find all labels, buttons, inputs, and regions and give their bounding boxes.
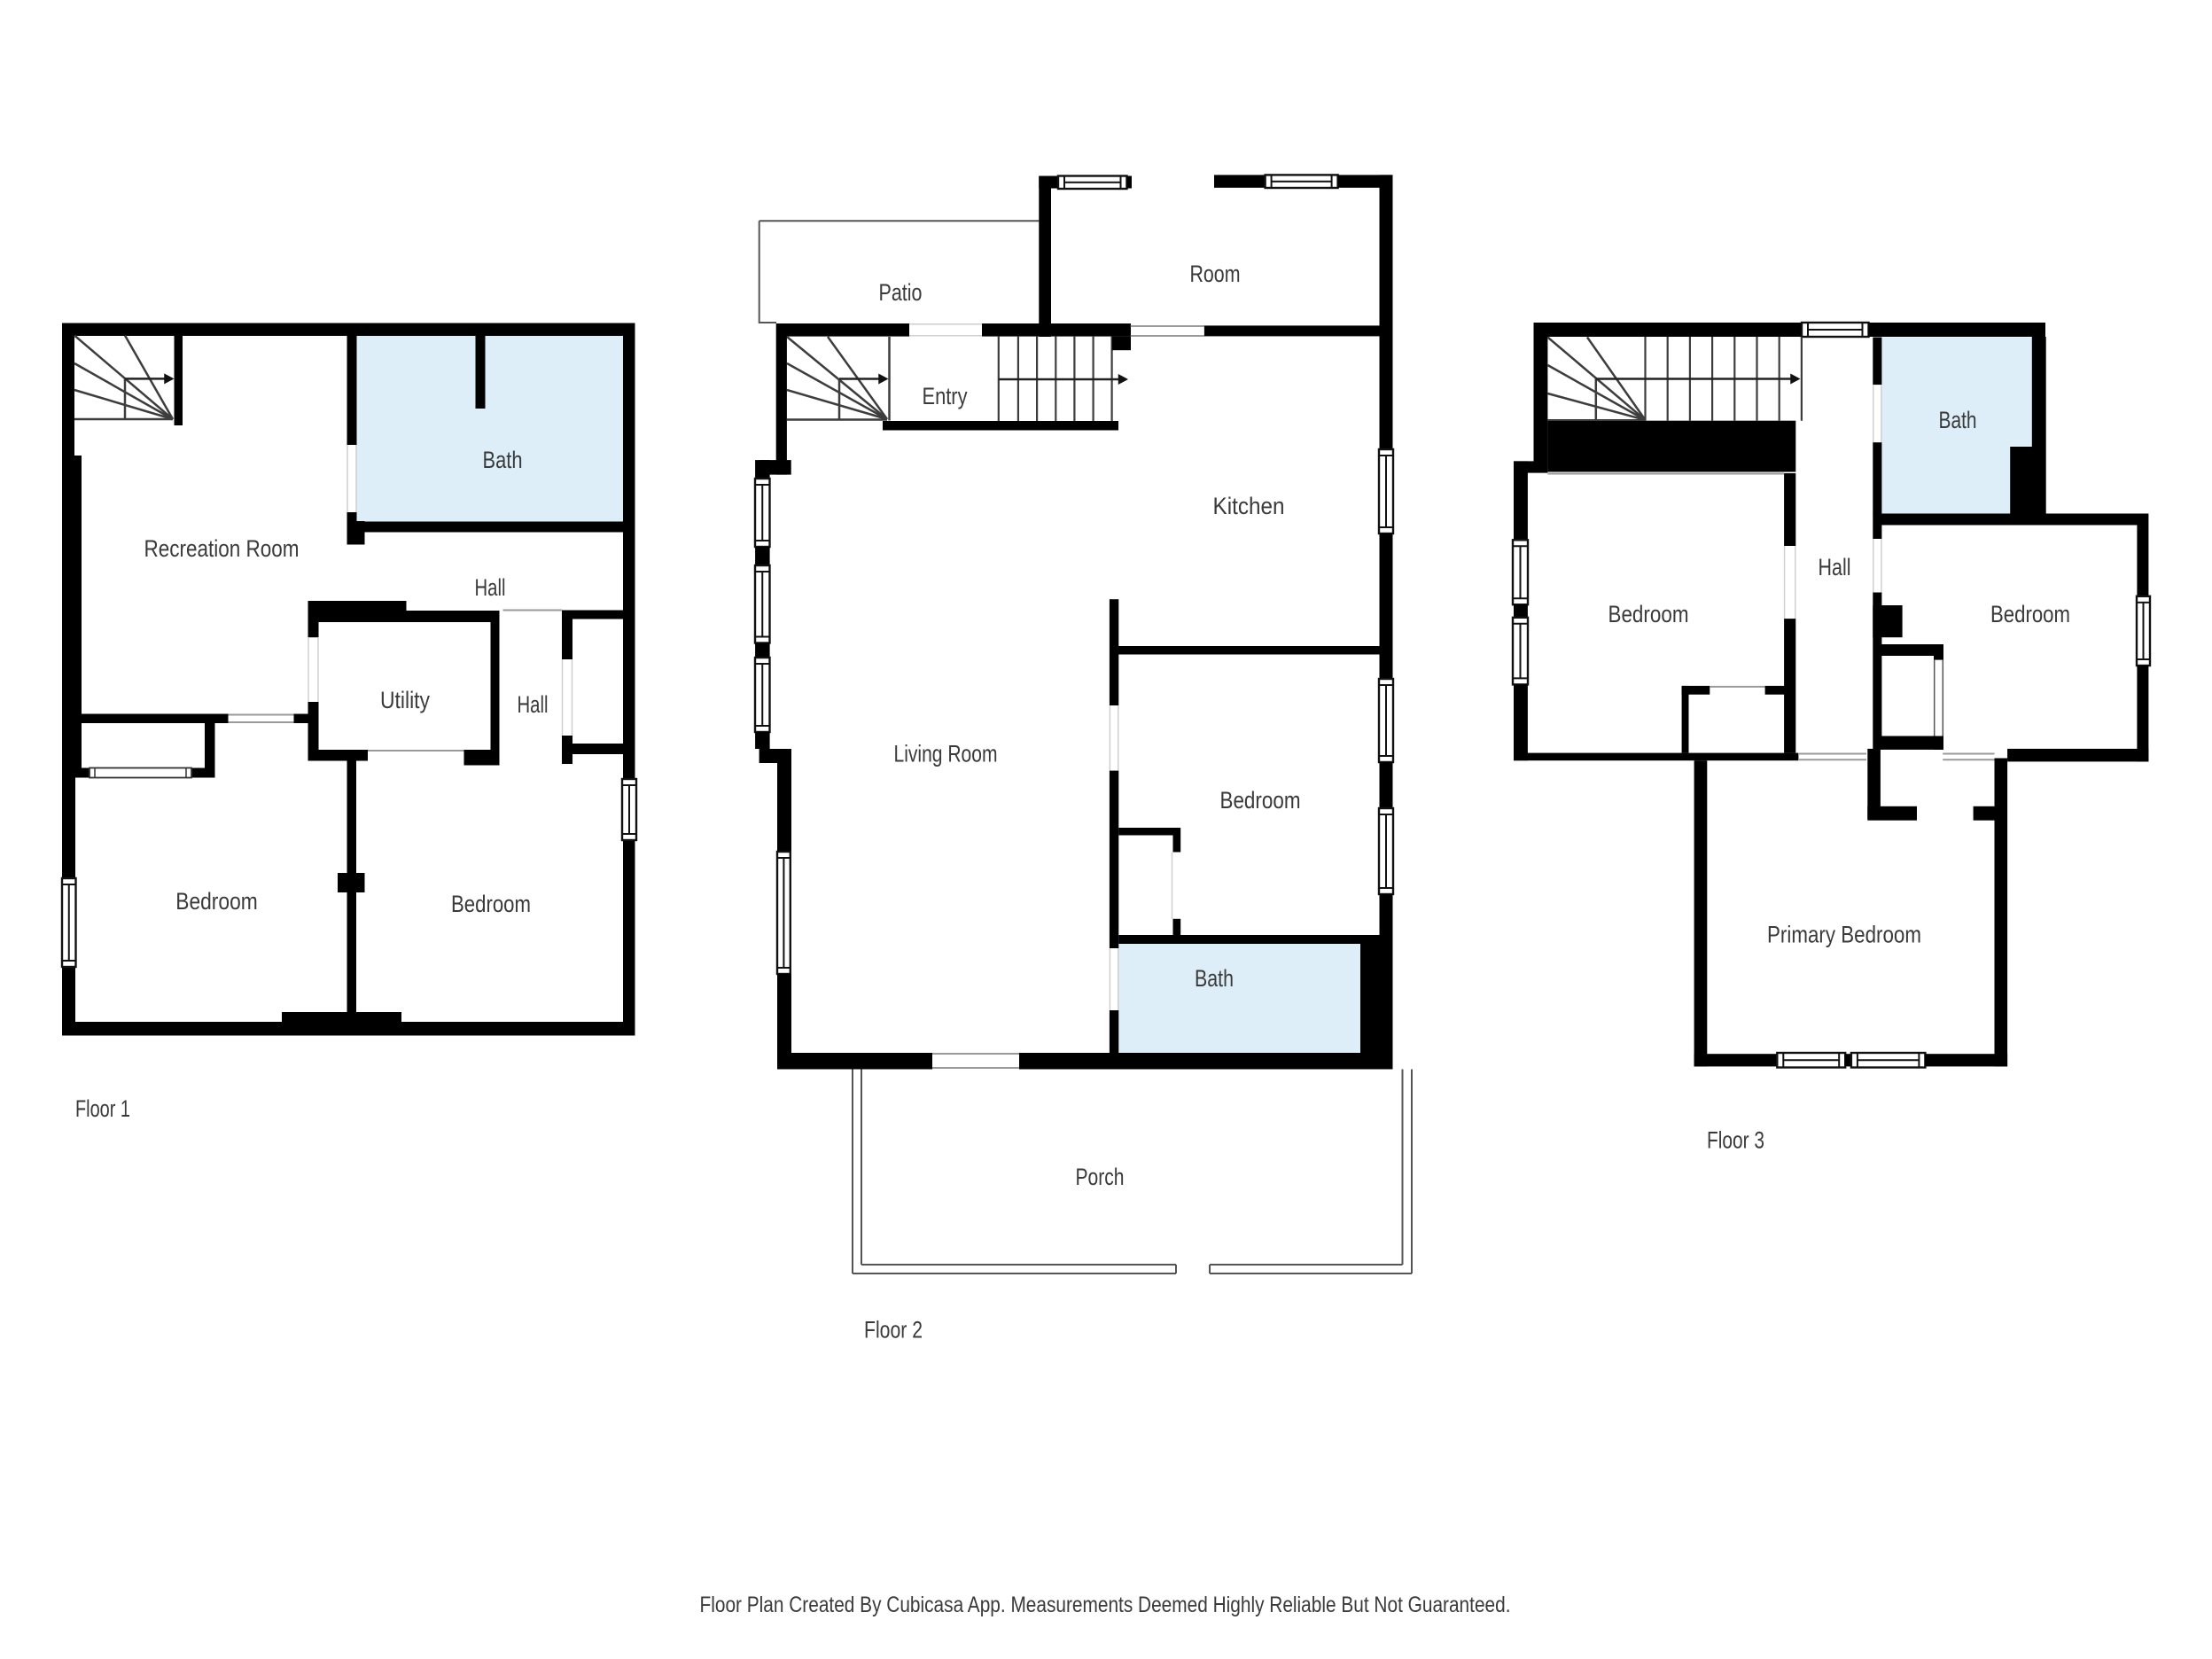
svg-text:Hall: Hall	[475, 574, 506, 601]
svg-text:Utility: Utility	[380, 687, 430, 713]
svg-text:Entry: Entry	[923, 383, 968, 409]
svg-text:Floor 1: Floor 1	[75, 1095, 130, 1122]
svg-text:Room: Room	[1190, 261, 1241, 287]
svg-text:Bath: Bath	[483, 447, 523, 473]
svg-text:Bedroom: Bedroom	[1220, 787, 1301, 814]
svg-text:Primary Bedroom: Primary Bedroom	[1767, 922, 1921, 948]
svg-text:Bedroom: Bedroom	[1608, 601, 1689, 627]
svg-text:Porch: Porch	[1076, 1164, 1125, 1190]
svg-text:Recreation Room: Recreation Room	[144, 535, 300, 562]
svg-text:Floor Plan Created By Cubicasa: Floor Plan Created By Cubicasa App. Meas…	[700, 1593, 1511, 1617]
svg-text:Hall: Hall	[1819, 554, 1851, 580]
svg-text:Patio: Patio	[879, 279, 923, 306]
svg-text:Kitchen: Kitchen	[1213, 493, 1285, 519]
svg-text:Floor 2: Floor 2	[864, 1317, 923, 1344]
svg-text:Living Room: Living Room	[894, 741, 998, 767]
svg-text:Hall: Hall	[518, 691, 549, 718]
svg-text:Bedroom: Bedroom	[1990, 601, 2070, 627]
svg-text:Bath: Bath	[1939, 407, 1977, 433]
svg-text:Bedroom: Bedroom	[451, 891, 531, 917]
svg-text:Floor 3: Floor 3	[1707, 1127, 1764, 1154]
svg-text:Bath: Bath	[1195, 965, 1234, 992]
svg-text:Bedroom: Bedroom	[175, 888, 258, 915]
